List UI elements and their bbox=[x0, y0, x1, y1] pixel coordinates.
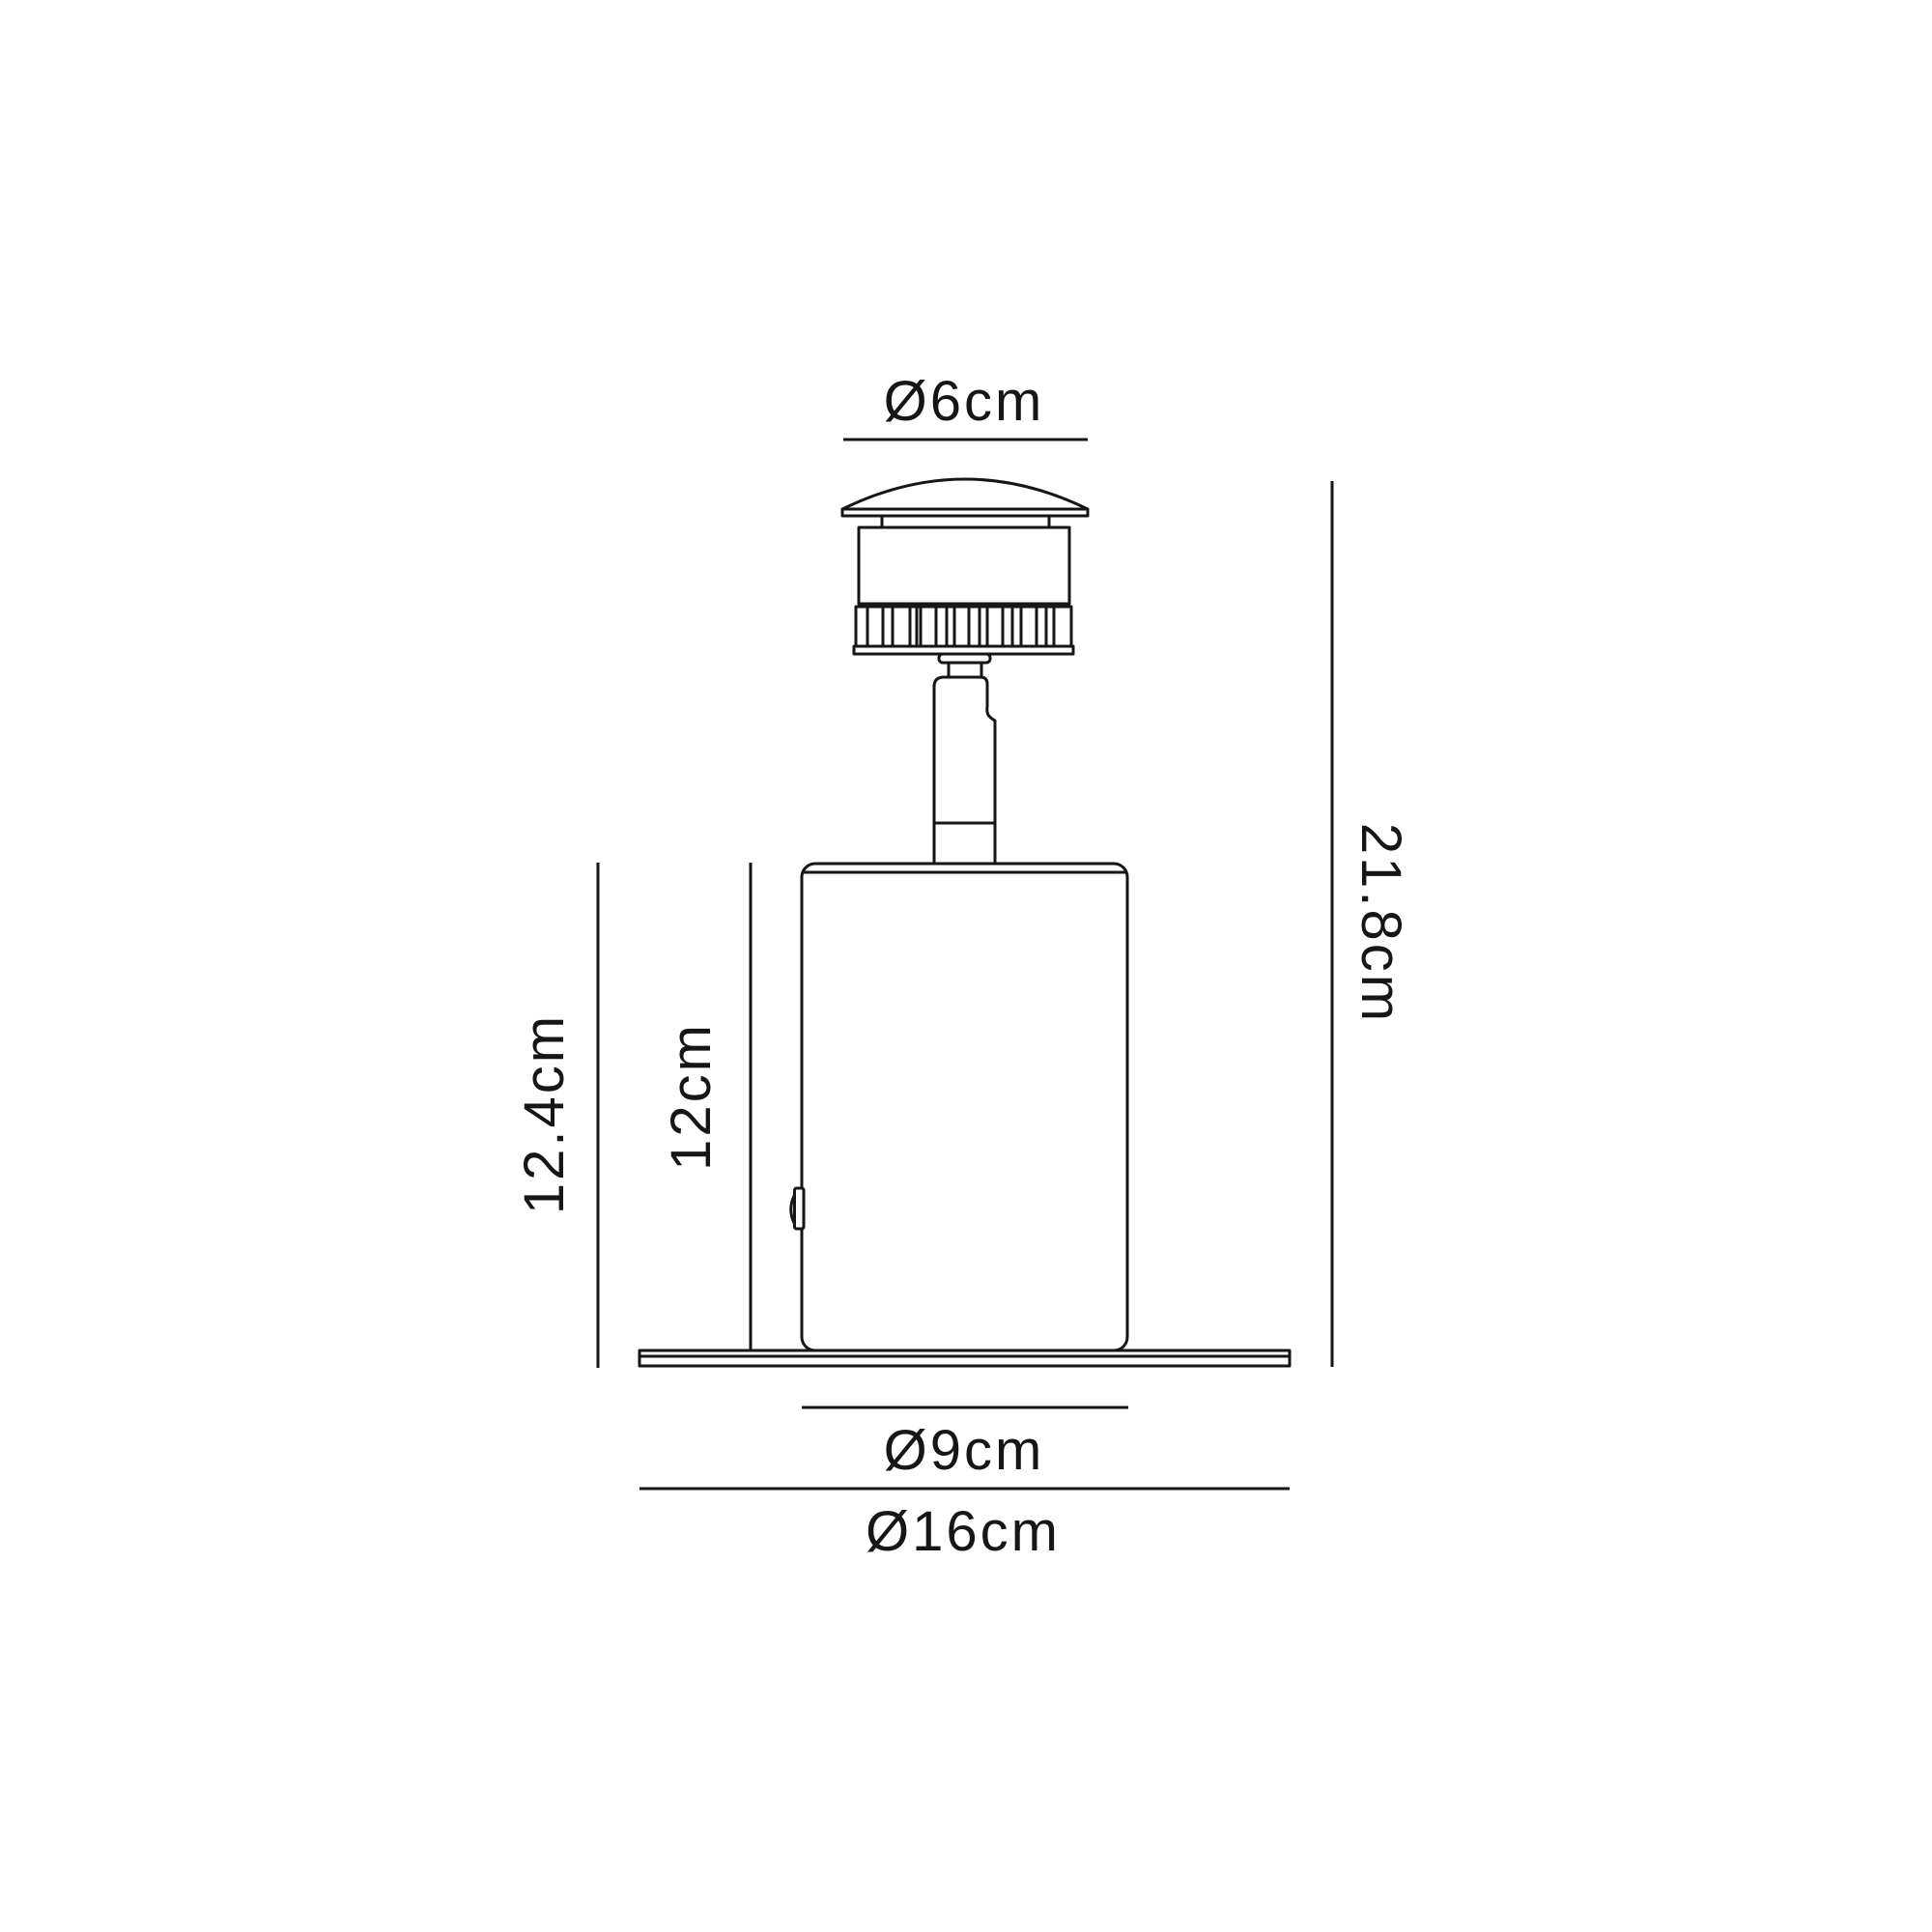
body-with-base-height-label: 12.4cm bbox=[513, 1013, 576, 1214]
side-switch bbox=[795, 1188, 805, 1229]
base-plate bbox=[639, 1350, 1290, 1366]
dimension-drawing-page: Ø6cm 21.8cm 12.4cm 12cm Ø9cm Ø16cm bbox=[0, 0, 1932, 1932]
fixture-dimension-diagram: Ø6cm 21.8cm 12.4cm 12cm Ø9cm Ø16cm bbox=[0, 0, 1932, 1932]
body-cylinder bbox=[802, 864, 1127, 1350]
body-diameter-label: Ø9cm bbox=[884, 1419, 1045, 1482]
body-height-label: 12cm bbox=[660, 1022, 723, 1171]
total-height-label: 21.8cm bbox=[1350, 823, 1412, 1024]
ribbed-ring-outline bbox=[856, 607, 1071, 646]
ribbed-ring bbox=[854, 607, 1073, 654]
base-plate-diameter-label: Ø16cm bbox=[866, 1500, 1061, 1563]
neck bbox=[949, 663, 981, 677]
cap-diameter-label: Ø6cm bbox=[884, 370, 1045, 433]
light-fixture-drawing bbox=[639, 479, 1290, 1366]
upper-band bbox=[859, 527, 1069, 604]
stem bbox=[934, 677, 995, 865]
